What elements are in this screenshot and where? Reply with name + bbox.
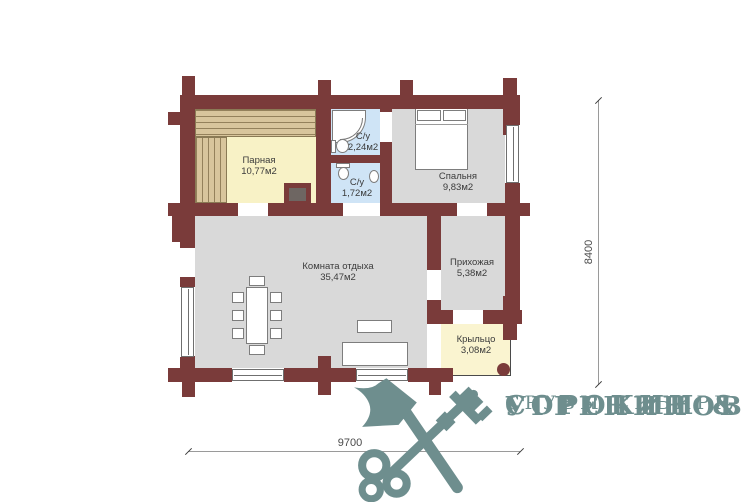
log-end <box>168 368 180 382</box>
log-end <box>172 216 180 242</box>
wall-segment <box>180 203 238 216</box>
room-name: Парная <box>209 155 309 166</box>
room-label-prihozhaya: Прихожая 5,38м2 <box>432 257 512 279</box>
window <box>181 287 194 357</box>
room-area: 5,38м2 <box>432 268 512 279</box>
chair <box>232 310 244 321</box>
log-end <box>520 203 530 216</box>
porch-post <box>497 363 510 376</box>
room-name: Прихожая <box>432 257 512 268</box>
crossed-axe-key-icon <box>352 376 514 502</box>
chair <box>270 328 282 339</box>
room-label-su2: С/у 1,72м2 <box>329 177 385 199</box>
floor-plan-page: Парная 10,77м2 С/у 2,24м2 С/у 1,72м2 Спа… <box>0 0 753 502</box>
wall-segment <box>328 155 380 163</box>
sauna-stove <box>284 183 311 206</box>
sofa-seats <box>348 348 402 364</box>
dimension-tick <box>595 381 602 388</box>
window <box>232 369 284 381</box>
sauna-bench-top <box>195 109 316 137</box>
chair <box>270 310 282 321</box>
chair <box>232 328 244 339</box>
room-area: 3,08м2 <box>436 345 516 356</box>
log-end <box>400 80 413 95</box>
sofa <box>342 342 408 366</box>
room-area: 10,77м2 <box>209 166 309 177</box>
log-end <box>318 356 331 395</box>
log-end <box>318 80 331 95</box>
dining-table <box>246 287 268 344</box>
room-name: Спальня <box>408 171 508 182</box>
chair <box>270 292 282 303</box>
chair <box>232 292 244 303</box>
chair <box>249 276 265 286</box>
room-label-parnaya: Парная 10,77м2 <box>209 155 309 177</box>
window-opening <box>180 248 195 277</box>
room-area: 9,83м2 <box>408 182 508 193</box>
room-label-lounge: Комната отдыха 35,47м2 <box>268 261 408 283</box>
room-label-spalnya: Спальня 9,83м2 <box>408 171 508 193</box>
pillow <box>417 110 441 121</box>
wall-segment <box>380 203 457 216</box>
chair <box>249 345 265 355</box>
room-name: Комната отдыха <box>268 261 408 272</box>
dimension-line-vertical <box>598 100 599 385</box>
room-name: С/у <box>329 177 385 188</box>
coffee-table <box>357 320 392 333</box>
room-name: Крыльцо <box>436 334 516 345</box>
wall-segment <box>380 95 392 112</box>
wall-segment <box>487 203 520 216</box>
door-opening <box>457 203 487 216</box>
wall-segment <box>180 277 195 287</box>
log-end <box>182 76 195 132</box>
room-name: С/у <box>335 131 391 142</box>
log-end <box>168 203 180 216</box>
room-label-kryltso: Крыльцо 3,08м2 <box>436 334 516 356</box>
room-area: 1,72м2 <box>329 188 385 199</box>
dimension-tick <box>517 448 524 455</box>
room-area: 35,47м2 <box>268 272 408 283</box>
wall-segment <box>180 95 520 109</box>
height-dimension-label: 8400 <box>583 232 595 272</box>
wall-segment <box>427 310 453 324</box>
logo-line3: СРУБЫ СИБИРИ <box>505 390 736 417</box>
stove-firebox <box>289 188 306 201</box>
door-opening <box>343 203 380 216</box>
blanket-line <box>415 124 468 125</box>
door-opening <box>453 310 483 324</box>
room-label-su1: С/у 2,24м2 <box>335 131 391 153</box>
door-opening <box>238 203 268 216</box>
pillow <box>443 110 466 121</box>
log-end <box>168 112 181 125</box>
log-end <box>182 356 195 397</box>
room-area: 2,24м2 <box>335 142 391 153</box>
